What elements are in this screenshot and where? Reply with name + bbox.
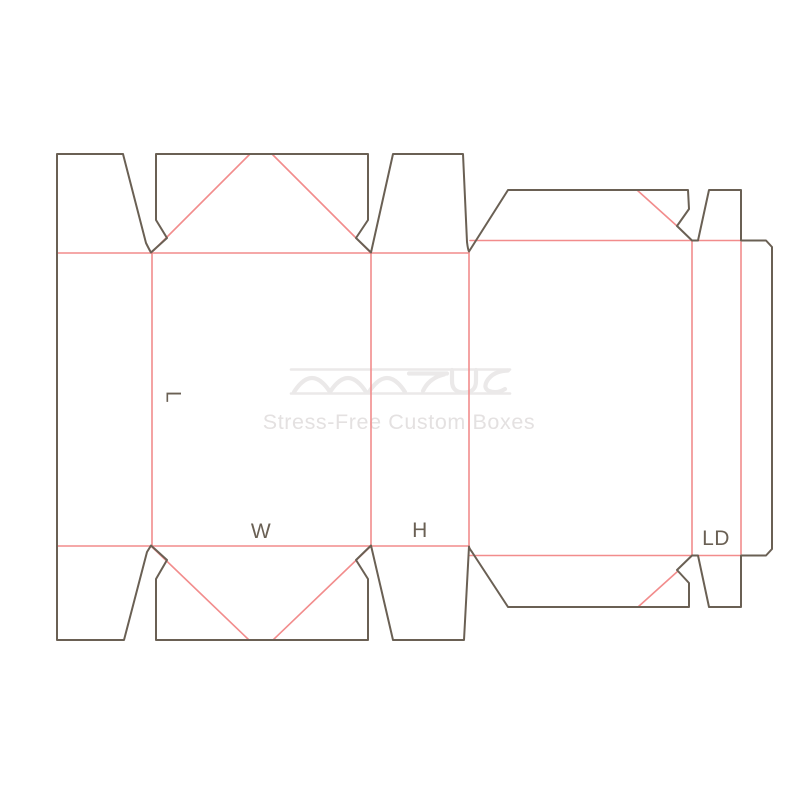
dieline-drawing: Stress-Free Custom Boxes L W <box>0 0 800 800</box>
crease-diagonal-lid-bottom <box>638 571 678 607</box>
watermark-tagline: Stress-Free Custom Boxes <box>263 410 535 434</box>
logo-letter-m <box>294 378 366 392</box>
watermark-tagline-group: Stress-Free Custom Boxes <box>263 410 535 434</box>
label-height: H <box>412 519 428 542</box>
label-lid-depth: LD <box>702 527 730 550</box>
crease-diagonal-lid-top <box>637 190 677 226</box>
logo-letter-t <box>409 374 447 392</box>
logo-letter-u <box>452 370 476 393</box>
logo-letter-s <box>485 371 508 393</box>
label-width: W <box>251 520 271 543</box>
logo-letter-a <box>369 378 405 392</box>
dieline-canvas: Stress-Free Custom Boxes L W <box>0 0 800 800</box>
label-length: L <box>161 391 184 403</box>
brand-logo-watermark <box>291 370 510 394</box>
